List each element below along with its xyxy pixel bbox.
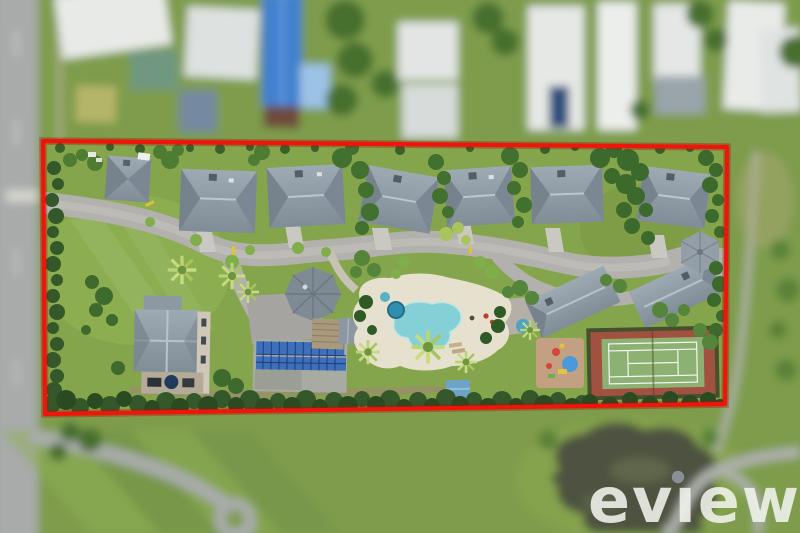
palm-tree xyxy=(412,331,445,364)
unit-6 xyxy=(530,165,604,224)
parked-car xyxy=(147,378,161,387)
skylight xyxy=(303,285,308,290)
white-house-with-solar xyxy=(528,6,584,130)
unit-1 xyxy=(105,156,152,203)
unit-3 xyxy=(266,164,345,228)
property-area xyxy=(40,141,728,416)
spa xyxy=(388,302,404,318)
palm-tree xyxy=(237,281,259,303)
palm-tree xyxy=(356,340,380,364)
unit-5 xyxy=(443,166,515,228)
street-entry-marking xyxy=(6,190,38,202)
unit-2 xyxy=(179,169,257,234)
palm-tree xyxy=(455,351,477,373)
pool-umbrella xyxy=(380,292,390,302)
eview-watermark: evıew xyxy=(588,464,800,533)
community-building xyxy=(285,267,341,321)
aerial-photo: evıew xyxy=(0,0,800,533)
watermark-i-dot xyxy=(672,471,684,483)
watermark-text: evıew xyxy=(588,464,800,533)
palm-tree xyxy=(520,320,540,340)
palm-tree xyxy=(168,256,197,285)
